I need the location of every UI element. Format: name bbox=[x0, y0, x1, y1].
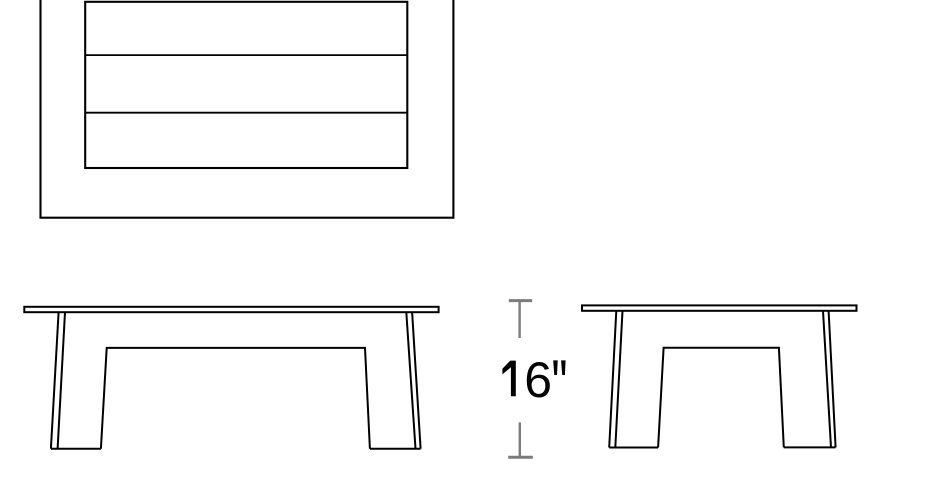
svg-text:6: 6 bbox=[524, 352, 552, 408]
